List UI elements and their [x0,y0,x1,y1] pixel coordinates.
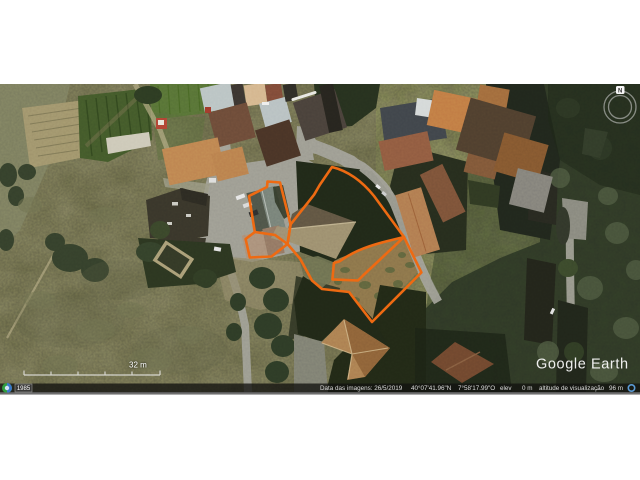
svg-text:...: ... [596,385,601,392]
svg-text:Google Earth: Google Earth [536,357,629,373]
svg-text:0 m: 0 m [522,385,533,392]
svg-text:altitude de visualização: altitude de visualização [539,385,605,392]
svg-text:32 m: 32 m [129,361,147,370]
svg-text:40°07'41.96"N: 40°07'41.96"N [411,384,452,392]
svg-text:elev: elev [500,385,512,392]
svg-text:96 m: 96 m [609,385,623,392]
svg-text:N: N [618,89,622,95]
svg-text:1985: 1985 [17,386,31,392]
svg-text:7°58'17.99"O: 7°58'17.99"O [458,384,495,392]
svg-text:Data das imagens: 26/5/2019: Data das imagens: 26/5/2019 [320,385,403,392]
